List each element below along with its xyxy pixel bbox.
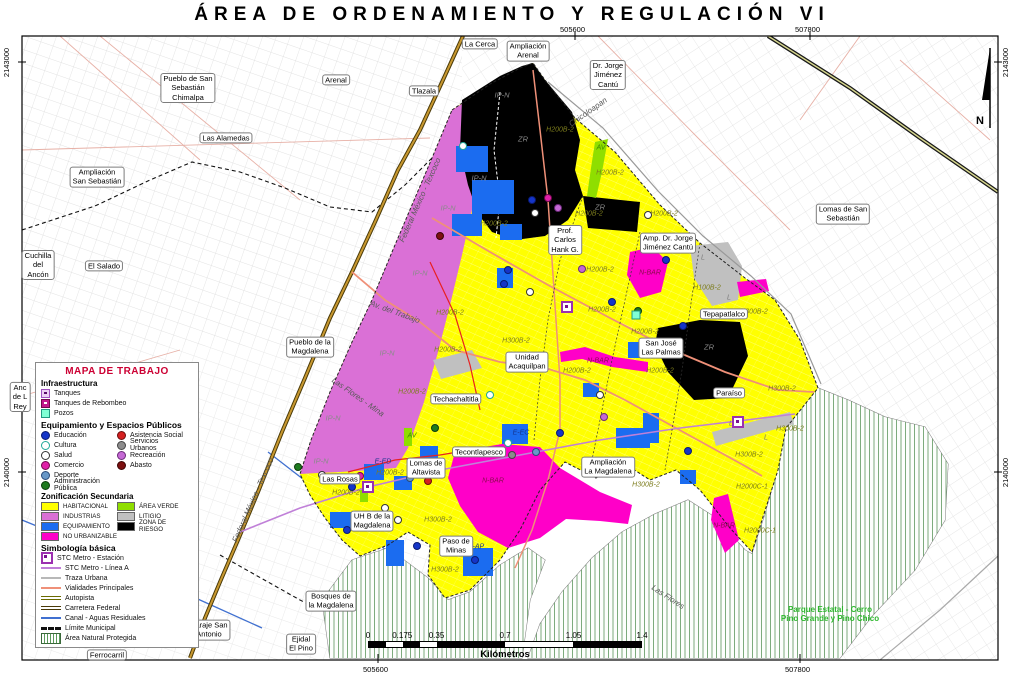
legend-item-autopista: Autopista <box>41 593 193 603</box>
legend-item-salud: Salud <box>41 450 117 460</box>
zone-code: L <box>727 295 731 302</box>
salud-dot-icon <box>41 451 50 460</box>
educacion-point <box>608 298 616 306</box>
salud-point <box>596 391 604 399</box>
place-label: Las Alamedas <box>199 132 252 143</box>
educacion-point <box>500 280 508 288</box>
educacion-point <box>679 322 687 330</box>
place-label: La Cerca <box>462 38 498 49</box>
abasto-point <box>436 232 444 240</box>
zone-code: H200B-2 <box>398 389 426 396</box>
place-label: Unidad Acaquilpan <box>505 352 548 373</box>
place-label: Ampliación La Magdalena <box>581 457 635 478</box>
canal-icon <box>41 617 61 619</box>
zone-code: H200B-2 <box>434 347 462 354</box>
legend-item-area-verde: ÁREA VERDE <box>117 501 183 511</box>
legend-item-servicios: Servicios Urbanos <box>117 440 183 450</box>
zone-code: H200B-2 <box>586 267 614 274</box>
recreacion-point <box>578 265 586 273</box>
legend-item-carretera-federal: Carretera Federal <box>41 603 193 613</box>
administracion-dot-icon <box>41 481 50 490</box>
coord-top-1: 505600 <box>560 25 585 34</box>
zone-code: IP-N <box>314 457 329 466</box>
salud-point <box>526 288 534 296</box>
litigio-chip <box>117 512 135 521</box>
educacion-point <box>556 429 564 437</box>
zone-code: H300B-2 <box>431 567 459 574</box>
place-label: Ferrocarril <box>87 649 127 660</box>
coord-right-2: 2140000 <box>1001 458 1010 487</box>
zone-code: ZR <box>704 343 714 352</box>
asistencia-dot-icon <box>117 431 126 440</box>
place-label: Anc de L Rey <box>10 382 31 412</box>
zone-code: H200B-2 <box>650 211 678 218</box>
legend-item-equipamiento-zone: EQUIPAMIENTO <box>41 521 117 531</box>
legend-panel: MAPA DE TRABAJO Infraestructura Tanques … <box>35 362 199 648</box>
place-label: Tlazala <box>409 85 439 96</box>
place-label: Paraíso <box>713 387 745 398</box>
legend-item-abasto: Abasto <box>117 460 183 470</box>
legend-heading-equipamiento: Equipamiento y Espacios Públicos <box>41 420 193 430</box>
place-label: Ejidal El Pino <box>286 634 316 655</box>
zone-code: IP-N <box>413 269 428 278</box>
place-label: Pueblo de la Magdalena <box>286 337 334 358</box>
legend-item-cultura: Cultura <box>41 440 117 450</box>
carretera-federal-icon <box>41 606 61 610</box>
legend-heading-simbologia: Simbología básica <box>41 543 193 553</box>
legend-item-rebombeo: Tanques de Rebombeo <box>41 398 193 408</box>
zone-code: H100B-2 <box>693 285 721 292</box>
no-urbanizable-chip <box>41 532 59 541</box>
place-label: Las Rosas <box>319 473 360 484</box>
servicios-dot-icon <box>117 441 126 450</box>
place-label: Lomas de Altavista <box>407 458 446 479</box>
comercio-point <box>544 194 552 202</box>
place-label: Paso de Minas <box>439 536 473 557</box>
scale-bar-segments <box>368 641 642 648</box>
zone-code: H300B-2 <box>735 452 763 459</box>
legend-item-canal: Canal - Aguas Residuales <box>41 613 193 623</box>
zone-code: IP-N <box>380 349 395 358</box>
place-label: Arenal <box>322 74 350 85</box>
administracion-point <box>294 463 302 471</box>
pozos-icon <box>41 409 50 418</box>
legend-item-educacion: Educación <box>41 430 117 440</box>
place-label: Lomas de San Sebastián <box>816 204 870 225</box>
legend-item-traza-urbana: Traza Urbana <box>41 573 193 583</box>
zone-code: H200B-2 <box>588 307 616 314</box>
zone-code: H200B-2 <box>546 127 574 134</box>
educacion-point <box>528 196 536 204</box>
zone-code: H300B-2 <box>776 426 804 433</box>
salud-point <box>531 209 539 217</box>
zone-code: H200B-2 <box>646 368 674 375</box>
scale-ticks: 0 0.175 0.35 0.7 1.05 1.4 <box>368 631 642 641</box>
coord-right-1: 2143000 <box>1001 48 1010 77</box>
legend-item-tanques: Tanques <box>41 388 193 398</box>
zone-code: L <box>764 435 768 442</box>
svg-text:N: N <box>976 115 984 127</box>
legend-heading-infraestructura: Infraestructura <box>41 379 193 388</box>
scale-unit-label: Kilómetros <box>368 649 642 660</box>
place-label: Ampliación San Sebastián <box>70 167 125 188</box>
zone-code: IP-N <box>326 414 341 423</box>
limite-municipal-icon <box>41 627 61 630</box>
area-verde-chip <box>117 502 135 511</box>
place-label: Cuchilla del Ancón <box>22 250 55 280</box>
industrias-chip <box>41 512 59 521</box>
cultura-point <box>459 142 467 150</box>
legend-item-comercio: Comercio <box>41 460 117 470</box>
place-label: Techachaltitla <box>430 393 481 404</box>
recreacion-point <box>600 413 608 421</box>
zone-code: E-EC <box>513 430 530 437</box>
autopista-icon <box>41 596 61 600</box>
tanques-icon <box>41 389 50 398</box>
zone-code: H2000C-1 <box>736 484 768 491</box>
pozo-icon <box>632 311 641 320</box>
coord-left-1: 2143000 <box>2 48 11 77</box>
habitacional-chip <box>41 502 59 511</box>
zone-code: N-BAR <box>482 478 504 485</box>
coord-bottom-2: 507800 <box>785 665 810 674</box>
zone-code: H300B-2 <box>768 386 796 393</box>
metro-estacion-icon <box>41 552 53 564</box>
zone-code: H300B-2 <box>502 338 530 345</box>
zone-code: N-BAR <box>639 270 661 277</box>
zone-code: L <box>701 255 705 262</box>
cultura-point <box>504 439 512 447</box>
place-label: San José Las Palmas <box>638 338 683 359</box>
abasto-dot-icon <box>117 461 126 470</box>
salud-point <box>394 516 402 524</box>
cultura-point <box>486 391 494 399</box>
zone-code: H2000C-1 <box>744 528 776 535</box>
place-label: El Salado <box>85 260 123 271</box>
place-label: Bosques de la Magdalena <box>305 591 356 612</box>
place-label: Tecontlapesco <box>452 446 506 457</box>
coord-left-2: 2140000 <box>2 458 11 487</box>
place-label: Prof. Carlos Hank G. <box>548 225 582 255</box>
zone-code: H200B-2 <box>563 368 591 375</box>
park-label: Parque Estatal - Cerro Pino Grande y Pin… <box>781 605 879 623</box>
zone-code: IP-N <box>495 91 510 100</box>
place-label: Ampliación Arenal <box>507 41 550 62</box>
legend-item-metro-linea: STC Metro - Línea A <box>41 563 193 573</box>
recreacion-point <box>554 204 562 212</box>
educacion-point <box>471 556 479 564</box>
zone-code: N-BAR <box>587 358 609 365</box>
tanques-rebombeo-icon <box>41 399 50 408</box>
zone-code: E-ED <box>375 459 392 466</box>
coord-top-2: 507800 <box>795 25 820 34</box>
deporte-point <box>532 448 540 456</box>
salud-point <box>644 211 652 219</box>
legend-heading-zonificacion: Zonificación Secundaria <box>41 492 193 501</box>
vialidades-icon <box>41 587 61 589</box>
legend-title: MAPA DE TRABAJO <box>41 366 193 377</box>
zone-code: H300B-2 <box>424 517 452 524</box>
legend-item-vialidades: Vialidades Principales <box>41 583 193 593</box>
zone-code: IP-N <box>441 204 456 213</box>
educacion-point <box>413 542 421 550</box>
legend-item-habitacional: HABITACIONAL <box>41 501 117 511</box>
zone-code: ZR <box>518 135 528 144</box>
zone-code: H200B-2 <box>376 470 404 477</box>
legend-item-no-urbanizable: NO URBANIZABLE <box>41 531 117 541</box>
legend-item-zona-riesgo: ZONA DE RIESGO <box>117 521 183 531</box>
educacion-point <box>662 256 670 264</box>
zone-code: H200B-2 <box>575 211 603 218</box>
metro-station-icon <box>732 416 744 428</box>
legend-item-limite-municipal: Límite Municipal <box>41 623 193 633</box>
legend-item-pozos: Pozos <box>41 408 193 418</box>
zone-code: AV <box>597 145 606 152</box>
place-label: Dr. Jorge Jiménez Cantú <box>590 60 626 90</box>
zone-code: H200B-2 <box>480 221 508 228</box>
traza-urbana-icon <box>41 577 61 579</box>
zone-code: H300B-2 <box>632 482 660 489</box>
zone-code: AV <box>408 433 417 440</box>
servicios-point <box>508 451 516 459</box>
legend-item-administracion: Administración Pública <box>41 480 117 490</box>
educacion-point <box>504 266 512 274</box>
zone-code: H200B-2 <box>631 329 659 336</box>
zone-code: IP-N <box>472 174 487 183</box>
metro-station-icon <box>362 481 374 493</box>
scale-bar: 0 0.175 0.35 0.7 1.05 1.4 Kilómetros <box>368 631 642 660</box>
zona-riesgo-chip <box>117 522 135 531</box>
recreacion-dot-icon <box>117 451 126 460</box>
zone-code: H200B-2 <box>596 170 624 177</box>
comercio-dot-icon <box>41 461 50 470</box>
zone-code: N-BAR <box>713 523 735 530</box>
place-label: UH B de la Magdalena <box>350 511 393 532</box>
educacion-point <box>684 447 692 455</box>
place-label: Tepapatlalco <box>700 308 748 319</box>
legend-item-industrias: INDUSTRIAS <box>41 511 117 521</box>
area-natural-protegida-icon <box>41 633 61 644</box>
equipamiento-chip <box>41 522 59 531</box>
metro-linea-icon <box>41 567 61 569</box>
administracion-point <box>431 424 439 432</box>
zone-code: H200B-2 <box>332 490 360 497</box>
legend-item-metro-estacion: STC Metro - Estación <box>41 553 193 563</box>
deporte-dot-icon <box>41 471 50 480</box>
educacion-dot-icon <box>41 431 50 440</box>
coord-bottom-1: 505600 <box>363 665 388 674</box>
place-label: Amp. Dr. Jorge Jiménez Cantú <box>640 233 696 254</box>
legend-item-anp: Área Natural Protegida <box>41 633 193 643</box>
cultura-dot-icon <box>41 441 50 450</box>
metro-station-icon <box>561 301 573 313</box>
place-label: Pueblo de San Sebastián Chimalpa <box>160 73 215 103</box>
zone-code: H200B-2 <box>436 310 464 317</box>
map-document: ÁREA DE ORDENAMIENTO Y REGULACIÓN VI <box>0 0 1024 682</box>
